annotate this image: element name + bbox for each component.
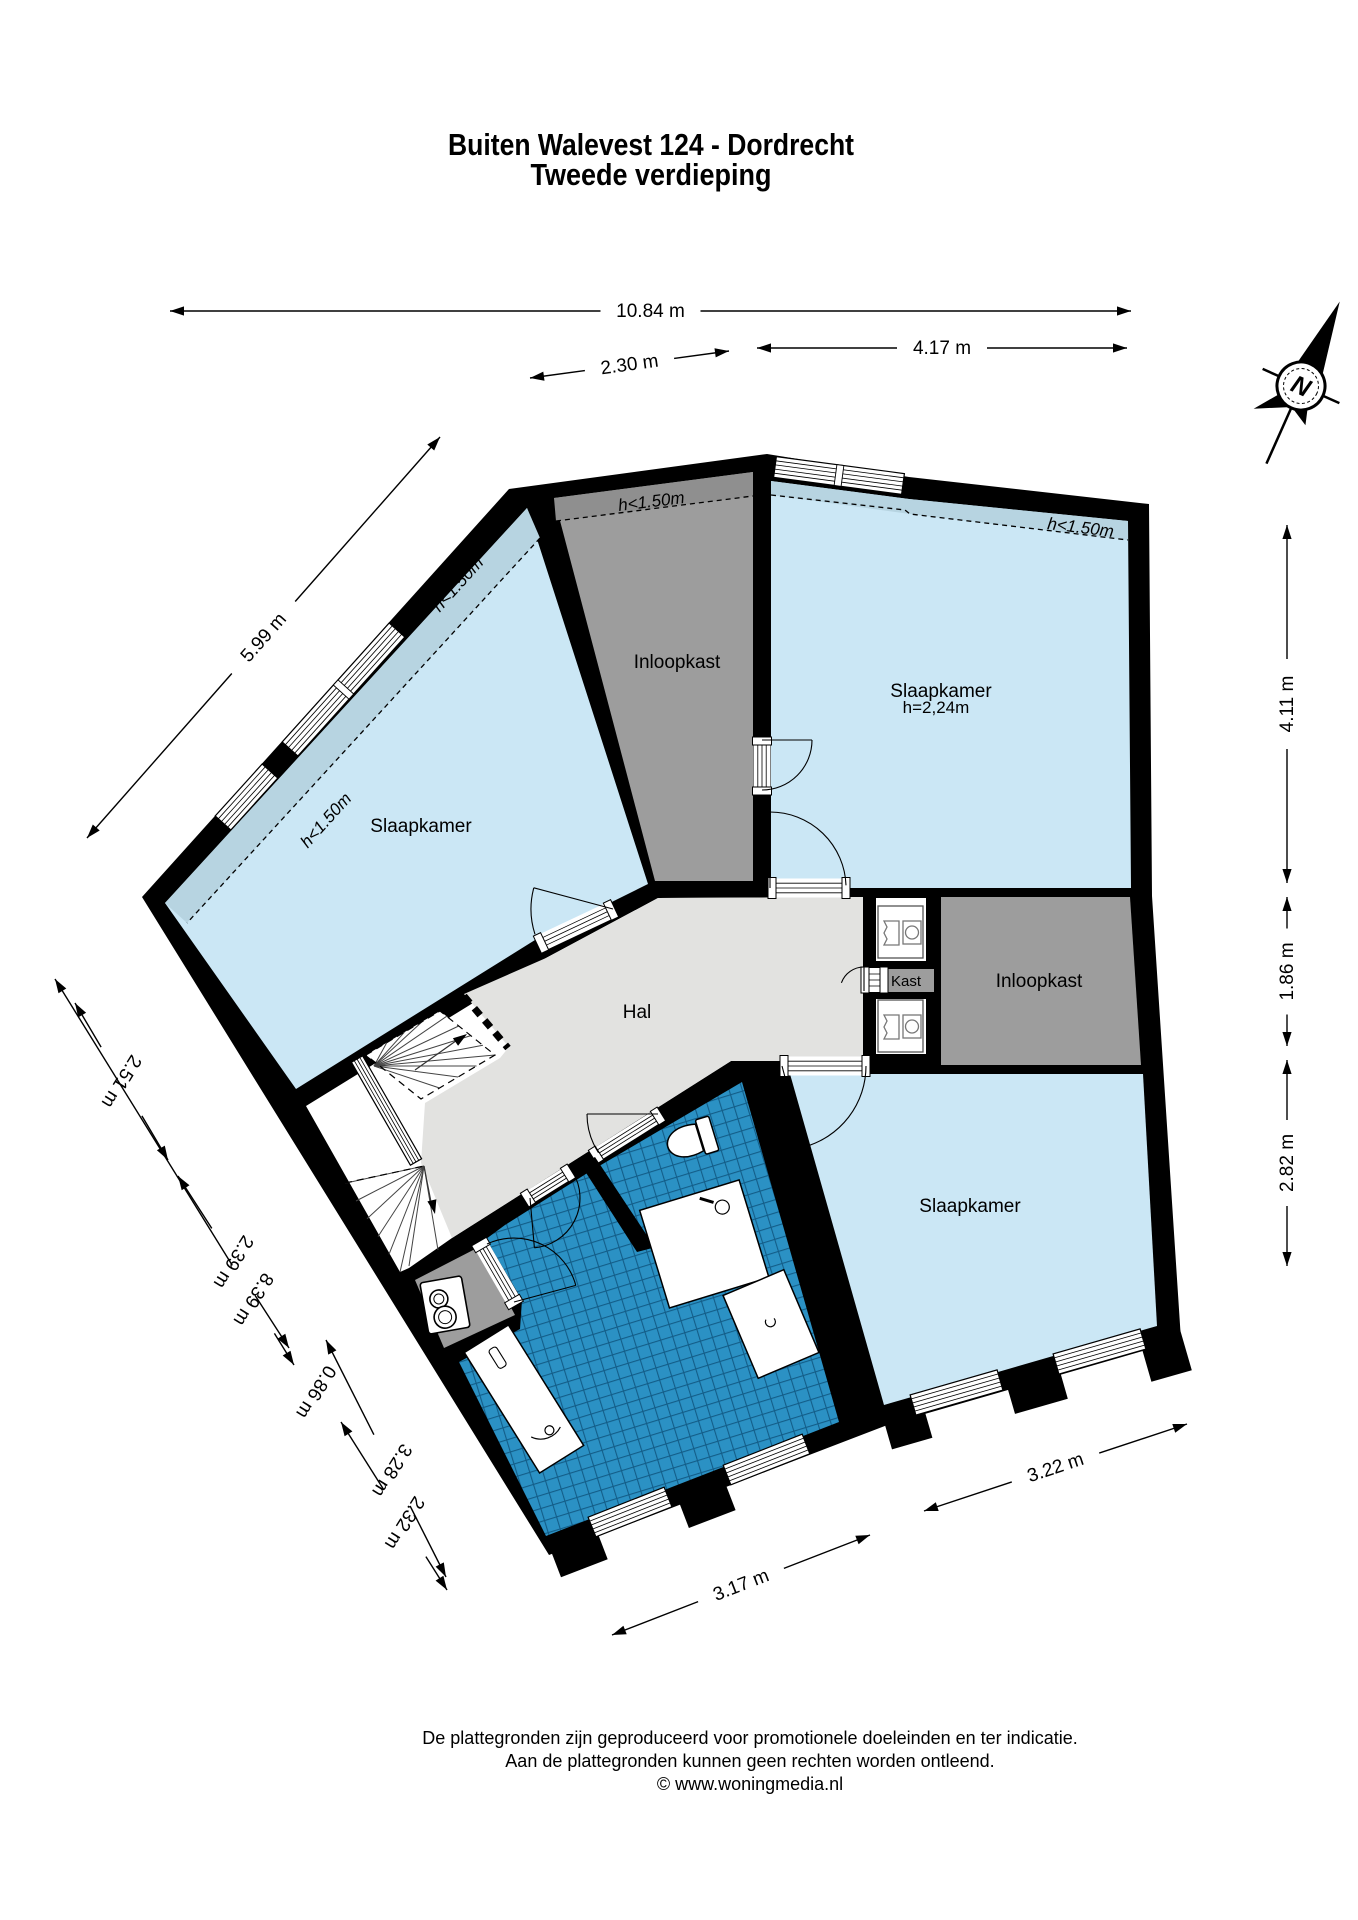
svg-text:4.11 m: 4.11 m (1277, 676, 1298, 733)
svg-text:De plattegronden zijn geproduc: De plattegronden zijn geproduceerd voor … (422, 1728, 1077, 1748)
svg-text:Tweede verdieping: Tweede verdieping (531, 157, 772, 192)
svg-text:© www.woningmedia.nl: © www.woningmedia.nl (657, 1774, 843, 1794)
svg-text:Slaapkamer: Slaapkamer (370, 816, 472, 837)
svg-text:1.86 m: 1.86 m (1277, 942, 1298, 1000)
svg-text:Inloopkast: Inloopkast (996, 971, 1083, 992)
svg-text:Inloopkast: Inloopkast (634, 652, 721, 673)
svg-text:Kast: Kast (891, 973, 922, 990)
svg-text:Slaapkamer: Slaapkamer (919, 1196, 1021, 1217)
svg-text:4.17 m: 4.17 m (913, 338, 971, 359)
svg-text:10.84 m: 10.84 m (616, 301, 685, 322)
svg-text:h=2,24m: h=2,24m (903, 698, 970, 717)
svg-text:Hal: Hal (623, 1002, 652, 1023)
svg-text:2.82 m: 2.82 m (1277, 1134, 1298, 1192)
svg-text:Aan de plattegronden kunnen ge: Aan de plattegronden kunnen geen rechten… (505, 1751, 994, 1771)
